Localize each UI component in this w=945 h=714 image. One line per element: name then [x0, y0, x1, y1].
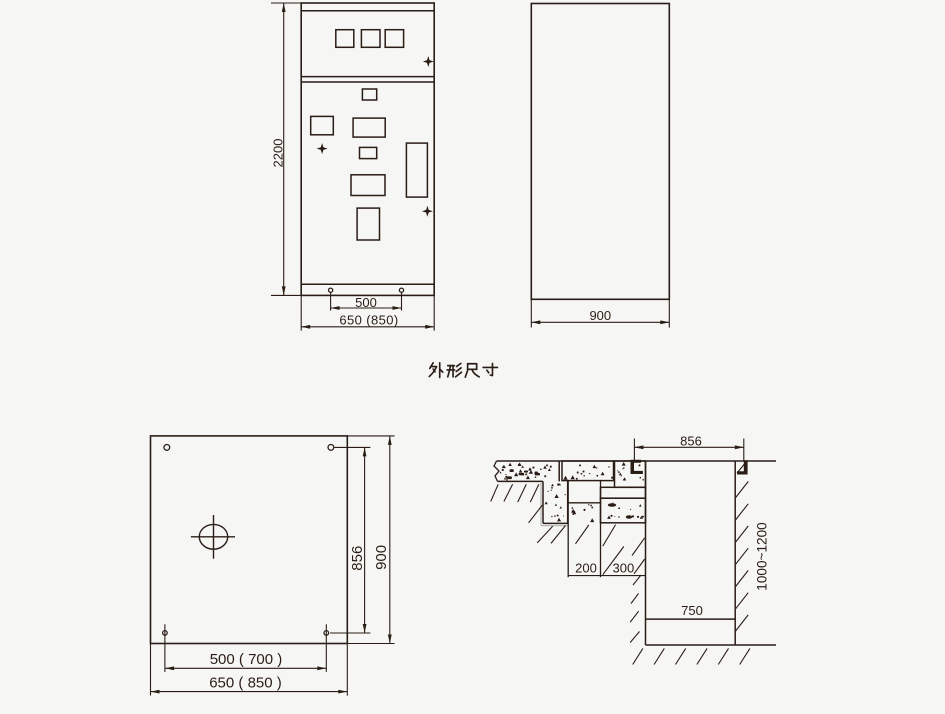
- svg-text:1000~1200: 1000~1200: [755, 522, 770, 591]
- svg-text:200: 200: [575, 561, 597, 576]
- svg-text:900: 900: [589, 308, 611, 323]
- svg-text:650 ( 850 ): 650 ( 850 ): [209, 675, 282, 692]
- svg-text:900: 900: [373, 545, 390, 570]
- svg-text:500 ( 700 ): 500 ( 700 ): [210, 651, 283, 668]
- svg-text:2200: 2200: [271, 139, 286, 168]
- svg-text:500: 500: [355, 295, 377, 310]
- svg-text:300: 300: [613, 561, 635, 576]
- svg-text:856: 856: [349, 546, 366, 571]
- svg-text:650 (850): 650 (850): [339, 313, 398, 328]
- svg-text:750: 750: [681, 603, 703, 618]
- svg-text:856: 856: [680, 433, 702, 448]
